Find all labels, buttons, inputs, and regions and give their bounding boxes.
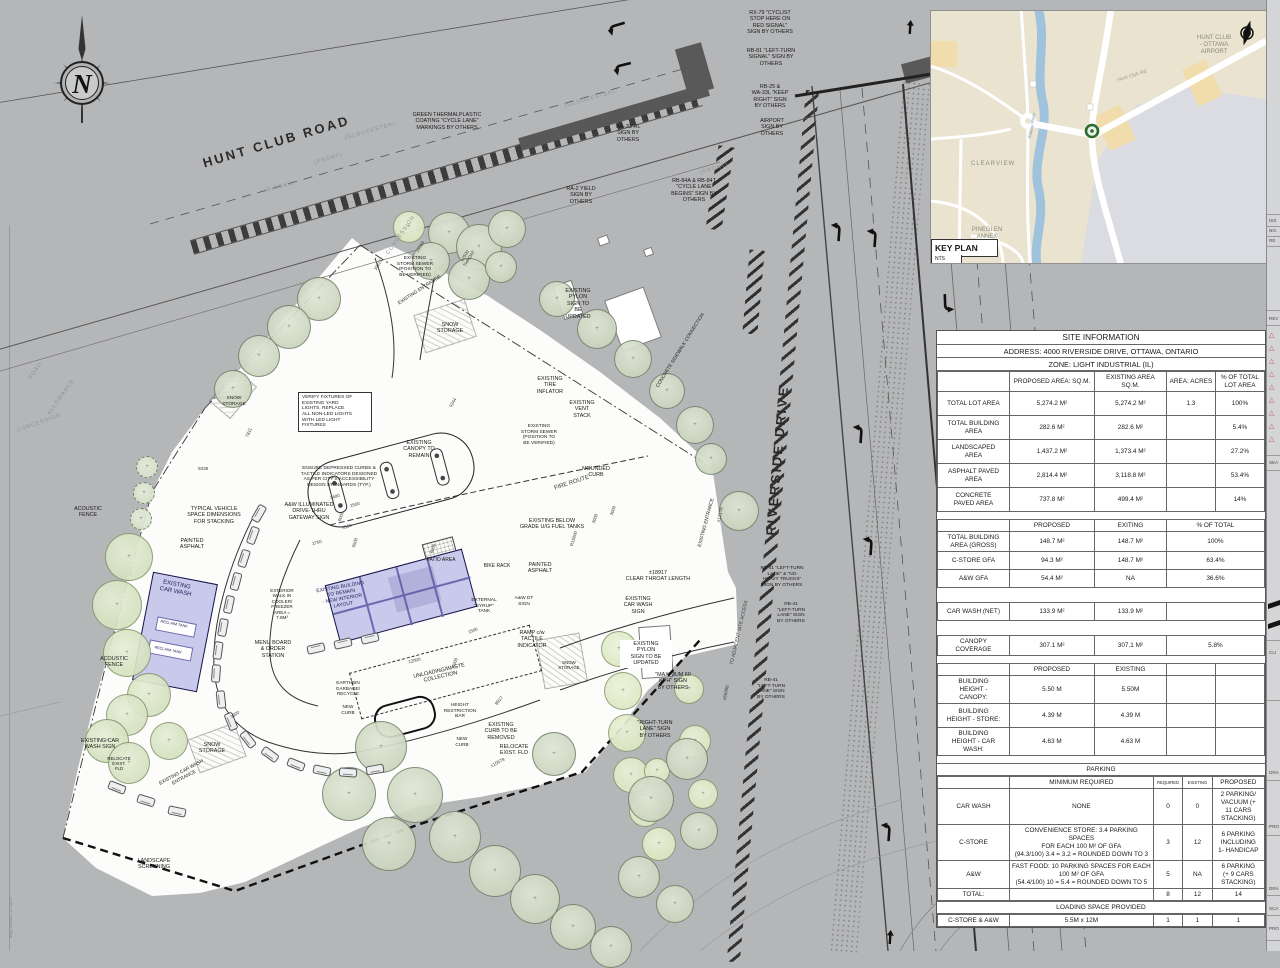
table-cell xyxy=(1215,704,1264,728)
table-cell xyxy=(1215,728,1264,756)
table-cell xyxy=(1094,621,1166,636)
left-turn-arrow-icon xyxy=(829,222,845,248)
table-cell: CAR WASH (NET) xyxy=(938,603,1010,621)
titleblock-label: SEA xyxy=(1269,460,1278,465)
parking-table: MINIMUM REQUIRED REQUIRED EXISTING PROPO… xyxy=(937,776,1265,901)
plan-annotation: MENU BOARD & ORDER STATION xyxy=(246,640,300,659)
titleblock-label: ISS xyxy=(1269,218,1276,223)
table-cell: NONE xyxy=(1009,789,1153,825)
table-cell: 0 xyxy=(1153,789,1182,825)
tree xyxy=(103,629,151,677)
plan-annotation: ENSURE DEPRESSED CURBS & TACTILE INDICAT… xyxy=(283,466,395,489)
titleblock-divider xyxy=(1267,940,1280,941)
titleblock-divider xyxy=(1267,835,1280,836)
median-island xyxy=(675,42,714,96)
loading-title: LOADING SPACE PROVIDED xyxy=(937,901,1265,914)
plan-annotation: MOUNDED CURB xyxy=(574,466,618,479)
height-table: PROPOSED EXISTING BUILDING HEIGHT - CANO… xyxy=(937,663,1265,756)
table-cell: 2,814.4 M² xyxy=(1009,464,1094,488)
table-cell: 282.6 M² xyxy=(1094,416,1166,440)
plan-annotation: EXTERNAL "SYRUP" TANK xyxy=(462,598,506,615)
titleblock-divider xyxy=(1267,236,1280,237)
plan-annotation: ±65996 xyxy=(719,673,733,713)
revision-triangle-icon: △ xyxy=(1269,384,1274,391)
titleblock-divider xyxy=(1267,640,1280,641)
plan-annotation: SNOW STORAGE xyxy=(552,660,586,670)
tree xyxy=(92,580,142,630)
table-cell: 5 xyxy=(1153,861,1182,889)
table-cell: 1,437.2 M² xyxy=(1009,440,1094,464)
plan-annotation: EXISTING STORM SEWER (POSITION TO BE VER… xyxy=(386,256,444,279)
table-cell: 0 xyxy=(1183,789,1212,825)
titleblock-label: PRO xyxy=(1269,926,1279,931)
plan-annotation: A&W DT SIGN xyxy=(506,596,542,607)
table-cell xyxy=(1009,588,1094,603)
table-cell: 5.4% xyxy=(1215,416,1264,440)
revision-triangle-icon: △ xyxy=(1269,358,1274,365)
table-cell: TOTAL LOT AREA xyxy=(938,392,1010,416)
table-cell: 148.7 M² xyxy=(1094,532,1166,552)
plan-annotation: SNOW STORAGE xyxy=(430,322,470,335)
plan-annotation: RA-2 YIELD SIGN BY OTHERS xyxy=(558,186,604,205)
table-cell: CANOPY COVERAGE xyxy=(938,636,1010,656)
table-cell: 6 PARKING (+ 9 CARS STACKING) xyxy=(1212,861,1264,889)
table-cell xyxy=(1166,728,1215,756)
plan-annotation: RELOCATE EXIST. FLD xyxy=(490,744,538,757)
tree xyxy=(133,482,155,504)
table-cell xyxy=(1009,621,1094,636)
tree xyxy=(105,533,153,581)
table-cell: ASPHALT PAVED AREA xyxy=(938,464,1010,488)
plan-annotation: EXISTING CURB TO BE REMOVED xyxy=(474,722,528,741)
table-cell xyxy=(1009,889,1153,901)
tree xyxy=(666,738,708,780)
plan-annotation: RIVERSIDE DRIVE xyxy=(763,415,789,536)
straight-arrow-icon xyxy=(905,20,914,41)
table-cell: 5,274.2 M² xyxy=(1094,392,1166,416)
gfa-table: PROPOSED EXITING % OF TOTAL TOTAL BUILDI… xyxy=(937,519,1265,656)
plan-annotation: RB-41 "LEFT-TURN LANE" SIGN BY OTHERS xyxy=(744,678,798,701)
table-cell: BUILDING HEIGHT - CANOPY: xyxy=(938,676,1010,704)
left-turn-arrow-icon xyxy=(865,228,881,254)
table-cell: C-STORE xyxy=(938,825,1010,861)
table-cell: NA xyxy=(1183,861,1212,889)
white-plate xyxy=(643,247,654,258)
plan-annotation: ROAD xyxy=(28,361,44,381)
plan-annotation: EXISTING STORM SEWER (POSITION TO BE VER… xyxy=(508,424,570,447)
plan-annotation: SNOW STORAGE xyxy=(214,396,254,407)
titleblock-label: DRA xyxy=(1269,770,1279,775)
plan-annotation: (RIDEAU) xyxy=(264,180,296,195)
plan-annotation: (FRONT) xyxy=(314,152,344,166)
table-cell: 4.39 M xyxy=(1009,704,1094,728)
table-cell: 12 xyxy=(1183,825,1212,861)
titleblock-divider xyxy=(1267,214,1280,215)
plot-stamp: dwg 09/30/14 12:44:05 xyxy=(8,897,13,938)
table-cell: 12 xyxy=(1183,889,1212,901)
table-cell: 36.6% xyxy=(1166,570,1264,588)
table-cell: 94.3 M² xyxy=(1009,552,1094,570)
table-cell: A&W xyxy=(938,861,1010,889)
table-cell: 133.9 M² xyxy=(1094,603,1166,621)
table-cell: 1 xyxy=(1183,915,1212,927)
plan-annotation: RX-79 "CYCLIST STOP HERE ON RED SIGNAL" … xyxy=(742,10,798,36)
plan-annotation: EXISTING CAR WASH SIGN xyxy=(616,596,660,615)
table-cell xyxy=(1166,440,1215,464)
left-turn-arrow-icon xyxy=(611,57,639,77)
table-cell: 8 xyxy=(1153,889,1182,901)
table-cell: 5.5M x 12M xyxy=(1009,915,1153,927)
tree xyxy=(590,926,632,968)
tree xyxy=(695,443,727,475)
tree xyxy=(532,732,576,776)
plan-annotation: RB-25 & WA-33L "KEEP RIGHT" SIGN BY OTHE… xyxy=(744,84,796,110)
tree xyxy=(150,722,188,760)
titleblock-label: NO. xyxy=(1269,228,1277,233)
revision-triangle-icon: △ xyxy=(1269,436,1274,443)
revision-triangle-icon: △ xyxy=(1269,423,1274,430)
tree xyxy=(618,856,660,898)
plan-annotation: AIRPORT SIGN BY OTHERS xyxy=(752,118,792,137)
plan-annotation: ACOUSTIC FENCE xyxy=(66,506,110,519)
site-info-zone: ZONE: LIGHT INDUSTRIAL (IL) xyxy=(937,358,1265,371)
table-cell: CAR WASH xyxy=(938,789,1010,825)
table-cell: CONCRETE PAVED AREA xyxy=(938,488,1010,512)
table-cell xyxy=(1094,588,1166,603)
titleblock-label: CLI xyxy=(1269,650,1276,655)
plan-annotation: VERIFY FIXTURES OF EXISTING YARD LIGHTS.… xyxy=(298,392,372,432)
table-cell: LANDSCAPED AREA xyxy=(938,440,1010,464)
table-cell: 14 xyxy=(1212,889,1264,901)
titleblock-label: RE xyxy=(1269,238,1275,243)
plan-annotation: ALLOWANCE xyxy=(46,378,76,417)
titleblock-divider xyxy=(1267,246,1280,247)
titleblock-strip: ISSNO.REREVSEACLIDRAPRODRASCAPRO△△△△△△△△… xyxy=(1266,0,1280,951)
table-cell: FAST FOOD: 10 PARKING SPACES FOR EACH 10… xyxy=(1009,861,1153,889)
table-cell: C-STORE & A&W xyxy=(938,915,1010,927)
table-cell: 1,373.4 M² xyxy=(1094,440,1166,464)
plan-annotation: "MAXIMUM 60 KPH" SIGN BY OTHERS xyxy=(644,672,702,691)
tree xyxy=(642,827,676,861)
north-compass-icon: N xyxy=(50,15,114,125)
loading-table: C-STORE & A&W5.5M x 12M111 xyxy=(937,914,1265,927)
titleblock-label: DRA xyxy=(1269,886,1279,891)
titleblock-divider xyxy=(1267,226,1280,227)
table-cell: 737.8 M² xyxy=(1009,488,1094,512)
site-information-panel: SITE INFORMATION ADDRESS: 4000 RIVERSIDE… xyxy=(936,330,1266,928)
titleblock-divider xyxy=(1267,700,1280,701)
plan-annotation: LANDSCAPE SCREENING xyxy=(128,858,180,871)
plan-annotation: EXISTING VENT STACK xyxy=(562,400,602,419)
table-cell: A&W GFA xyxy=(938,570,1010,588)
plan-annotation: GREEN THERMALPLASTIC COATING "CYCLE LANE… xyxy=(392,112,502,131)
tree xyxy=(656,885,694,923)
table-cell: 1.3 xyxy=(1166,392,1215,416)
parking-title: PARKING xyxy=(937,763,1265,776)
table-cell: TOTAL: xyxy=(938,889,1010,901)
table-cell: 53.4% xyxy=(1215,464,1264,488)
plan-annotation: RB-81 "LEFT-TURN SIGNAL" SIGN BY OTHERS xyxy=(740,48,802,67)
table-cell: 307.1 M² xyxy=(1094,636,1166,656)
titleblock-label: SCA xyxy=(1269,906,1278,911)
plan-annotation: EXTERIOR WALK IN COOLER/ FREEZER AREA = … xyxy=(262,588,302,620)
table-cell: 3 xyxy=(1153,825,1182,861)
parked-car xyxy=(211,664,221,683)
plan-annotation: NEW CURB xyxy=(334,704,362,715)
table-cell: 54.4 M² xyxy=(1009,570,1094,588)
plan-annotation: EXISTING CAR WASH SIGN xyxy=(70,738,130,751)
table-cell: 6 PARKING INCLUDING 1- HANDICAP xyxy=(1212,825,1264,861)
riverside-shoulder-texture xyxy=(829,80,930,954)
titleblock-divider xyxy=(1267,470,1280,471)
plan-annotation: NEW CURB xyxy=(448,736,476,747)
tree xyxy=(485,251,517,283)
white-plate xyxy=(597,234,610,246)
table-cell xyxy=(1166,704,1215,728)
plan-annotation: ACOUSTIC FENCE xyxy=(92,656,136,669)
key-plan-scale: NTS xyxy=(931,255,962,264)
titleblock-divider xyxy=(1267,780,1280,781)
plan-annotation: (GLOUCESTER) xyxy=(344,121,396,142)
tree xyxy=(680,812,718,850)
parked-car xyxy=(339,767,358,777)
table-cell xyxy=(938,588,1010,603)
table-cell: 100% xyxy=(1166,532,1264,552)
table-cell: 2 PARKING/ VACUUM (+ 11 CARS STACKING) xyxy=(1212,789,1264,825)
parked-car xyxy=(216,690,227,709)
table-cell: 1 xyxy=(1153,915,1182,927)
table-cell: 4.39 M xyxy=(1094,704,1166,728)
table-cell: CONVENIENCE STORE: 3.4 PARKING SPACES FO… xyxy=(1009,825,1153,861)
table-cell: 282.6 M² xyxy=(1009,416,1094,440)
plan-annotation: PAINTED ASPHALT xyxy=(518,562,562,575)
plan-annotation: EXISTING TIRE INFLATOR xyxy=(528,376,572,395)
plan-annotation: EARTHBIN GARBAGE/ RECYCLE xyxy=(326,680,370,697)
table-cell: 63.4% xyxy=(1166,552,1264,570)
site-info-address: ADDRESS: 4000 RIVERSIDE DRIVE, OTTAWA, O… xyxy=(937,345,1265,358)
titleblock-divider xyxy=(1267,310,1280,311)
table-cell xyxy=(1166,676,1215,704)
tree xyxy=(448,258,490,300)
table-cell: NA xyxy=(1094,570,1166,588)
plan-annotation: (GLOUCESTER) xyxy=(564,89,616,110)
table-cell: 14% xyxy=(1215,488,1264,512)
map-label-clearview: CLEARVIEW xyxy=(971,161,1015,168)
table-cell: 3,118.8 M² xyxy=(1094,464,1166,488)
table-cell xyxy=(938,621,1010,636)
plan-annotation: EXISTING PYLON SIGN TO BE UPDATED xyxy=(620,640,672,668)
tree xyxy=(362,817,416,871)
tree xyxy=(488,210,526,248)
revision-triangle-icon: △ xyxy=(1269,332,1274,339)
sheet-edge-line xyxy=(9,225,10,951)
titleblock-label: REV xyxy=(1269,316,1278,321)
table-cell xyxy=(1215,676,1264,704)
plan-annotation: RB-41 "LEFT-TURN LANE" & "NO HEAVY TRUCK… xyxy=(744,566,820,589)
left-turn-arrow-icon xyxy=(861,536,877,562)
left-turn-arrow-icon xyxy=(940,288,955,313)
tree xyxy=(688,779,718,809)
tree xyxy=(614,340,652,378)
tree xyxy=(550,904,596,950)
tree xyxy=(130,508,152,530)
straight-arrow-icon xyxy=(885,930,894,951)
channel-island-hatch xyxy=(742,250,764,335)
plan-annotation: PATIO AREA xyxy=(416,558,466,564)
plan-annotation: CONCESSION xyxy=(16,412,62,434)
table-cell: 133.9 M² xyxy=(1009,603,1094,621)
plan-annotation: RAMP c/w TACTILE INDICATOR xyxy=(508,630,556,649)
area-table: PROPOSED AREA: SQ.M. EXISTING AREA SQ.M.… xyxy=(937,371,1265,512)
plan-annotation: "RIGHT-TURN LANE" SIGN BY OTHERS xyxy=(628,720,682,739)
table-cell: 5.8% xyxy=(1166,636,1264,656)
table-cell: 5,274.2 M² xyxy=(1009,392,1094,416)
site-info-title: SITE INFORMATION xyxy=(937,331,1265,345)
tree xyxy=(628,776,674,822)
plan-annotation: RELOCATE EXIST. FLD xyxy=(100,756,138,772)
tree xyxy=(136,456,158,478)
table-cell: 4.63 M xyxy=(1009,728,1094,756)
table-cell xyxy=(1166,464,1215,488)
table-cell xyxy=(1166,588,1264,603)
revision-triangle-icon: △ xyxy=(1269,397,1274,404)
revision-triangle-icon: △ xyxy=(1269,410,1274,417)
left-turn-arrow-icon xyxy=(851,424,867,450)
titleblock-label: PRO xyxy=(1269,824,1279,829)
plan-annotation: RB-41 "LEFT-TURN LANE" SIGN BY OTHERS xyxy=(764,602,818,625)
titleblock-divider xyxy=(1267,895,1280,896)
plan-annotation: EXISTING CANOPY TO REMAIN xyxy=(394,440,444,459)
table-cell xyxy=(1166,416,1215,440)
left-turn-arrow-icon xyxy=(879,822,895,848)
table-cell: 5.50M xyxy=(1094,676,1166,704)
table-cell: TOTAL BUILDING AREA xyxy=(938,416,1010,440)
plan-annotation: HEIGHT RESTRICTION BAR xyxy=(430,703,490,720)
plan-annotation: 9339 xyxy=(198,466,208,471)
table-cell: 1 xyxy=(1212,915,1264,927)
map-label-airport: HUNT CLUB - OTTAWA AIRPORT xyxy=(1171,35,1257,57)
table-cell: 148.7 M² xyxy=(1094,552,1166,570)
table-cell xyxy=(1166,488,1215,512)
table-cell: 100% xyxy=(1215,392,1264,416)
plan-annotation: BIKE RACK xyxy=(474,564,520,570)
titleblock-divider xyxy=(1267,915,1280,916)
tree xyxy=(604,672,642,710)
table-cell: BUILDING HEIGHT - STORE: xyxy=(938,704,1010,728)
plan-annotation: EXISTING PYLON SIGN TO BE UPDATED xyxy=(556,288,600,320)
titleblock-divider xyxy=(1267,325,1280,326)
table-cell: C-STORE GFA xyxy=(938,552,1010,570)
table-cell: TOTAL BUILDING AREA (GROSS) xyxy=(938,532,1010,552)
svg-text:N: N xyxy=(71,69,93,99)
plan-annotation: TYPICAL VEHICLE SPACE DIMENSIONS FOR STA… xyxy=(172,506,256,525)
firm-logo-icon xyxy=(1268,620,1280,629)
left-turn-arrow-icon xyxy=(605,16,633,36)
plan-annotation: EXISTING BELOW GRADE U/G FUEL TANKS xyxy=(502,518,602,531)
firm-logo-icon xyxy=(1268,600,1280,609)
plan-annotation: ±18917 CLEAR THROAT LENGTH xyxy=(612,570,704,583)
tree xyxy=(676,406,714,444)
revision-triangle-icon: △ xyxy=(1269,371,1274,378)
table-cell xyxy=(1166,603,1264,621)
table-cell: 307.1 M² xyxy=(1009,636,1094,656)
key-plan-map: HUNT CLUB - OTTAWA AIRPORT CLEARVIEW PIN… xyxy=(930,10,1267,264)
table-cell: BUILDING HEIGHT - CAR WASH: xyxy=(938,728,1010,756)
table-cell: 148.7 M² xyxy=(1009,532,1094,552)
plan-annotation: RB-84A & RB-84T "CYCLE LANE BEGINS" SIGN… xyxy=(658,178,730,204)
table-cell: 5.50 M xyxy=(1009,676,1094,704)
table-cell: 499.4 M² xyxy=(1094,488,1166,512)
titleblock-divider xyxy=(1267,455,1280,456)
revision-triangle-icon: △ xyxy=(1269,345,1274,352)
table-cell: 27.2% xyxy=(1215,440,1264,464)
table-cell: 4.63 M xyxy=(1094,728,1166,756)
plan-annotation: WA-33 RL SIGN BY OTHERS xyxy=(606,124,650,143)
table-cell xyxy=(1166,621,1264,636)
plan-annotation: PAINTED ASPHALT xyxy=(170,538,214,551)
